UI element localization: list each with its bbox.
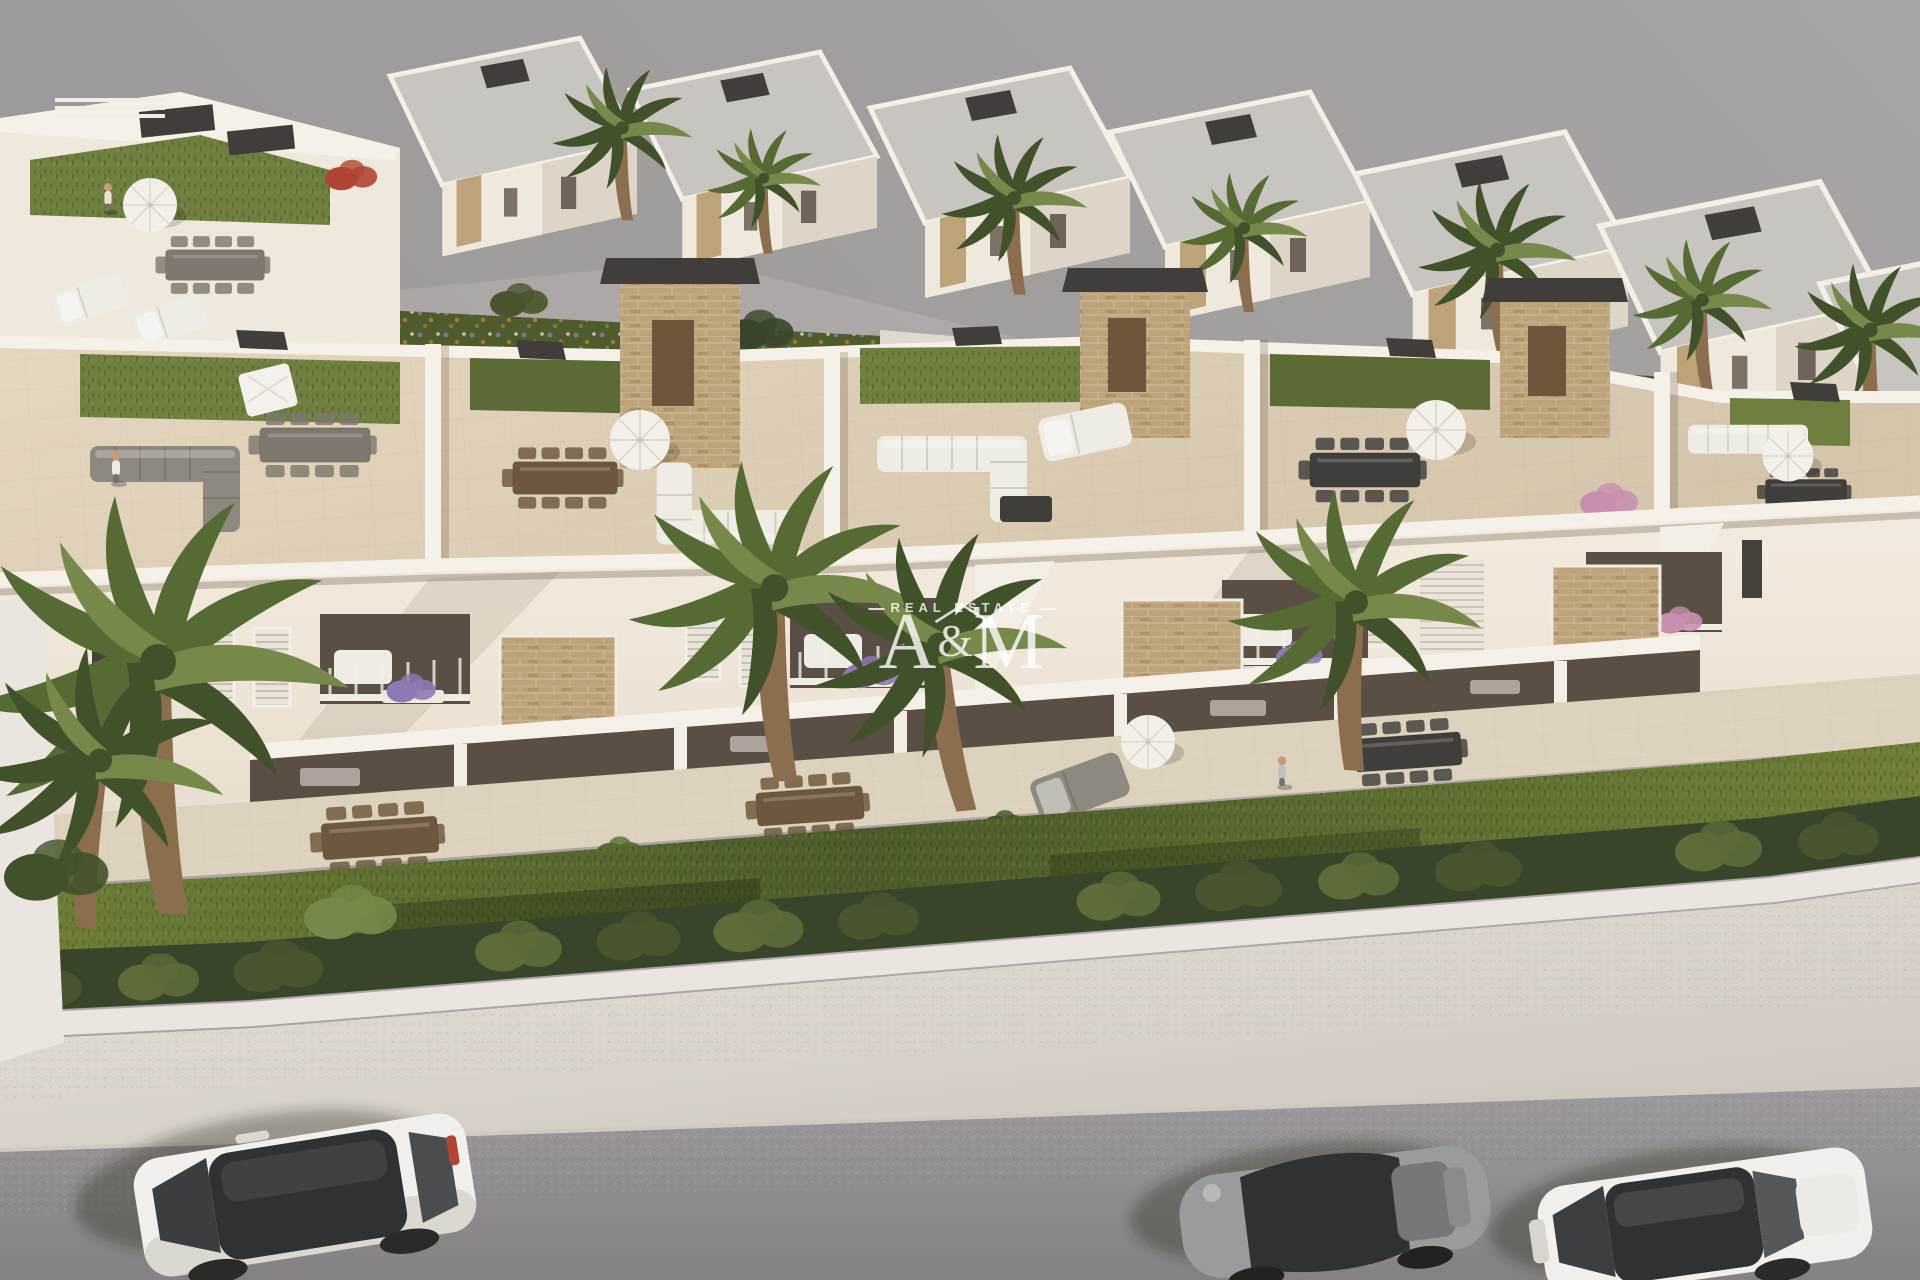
watermark-subtitle: REAL ESTATE	[876, 601, 1047, 614]
balcony	[320, 614, 470, 704]
architectural-render: REAL ESTATE A&M	[0, 0, 1920, 1280]
watermark: REAL ESTATE A&M	[876, 600, 1047, 682]
